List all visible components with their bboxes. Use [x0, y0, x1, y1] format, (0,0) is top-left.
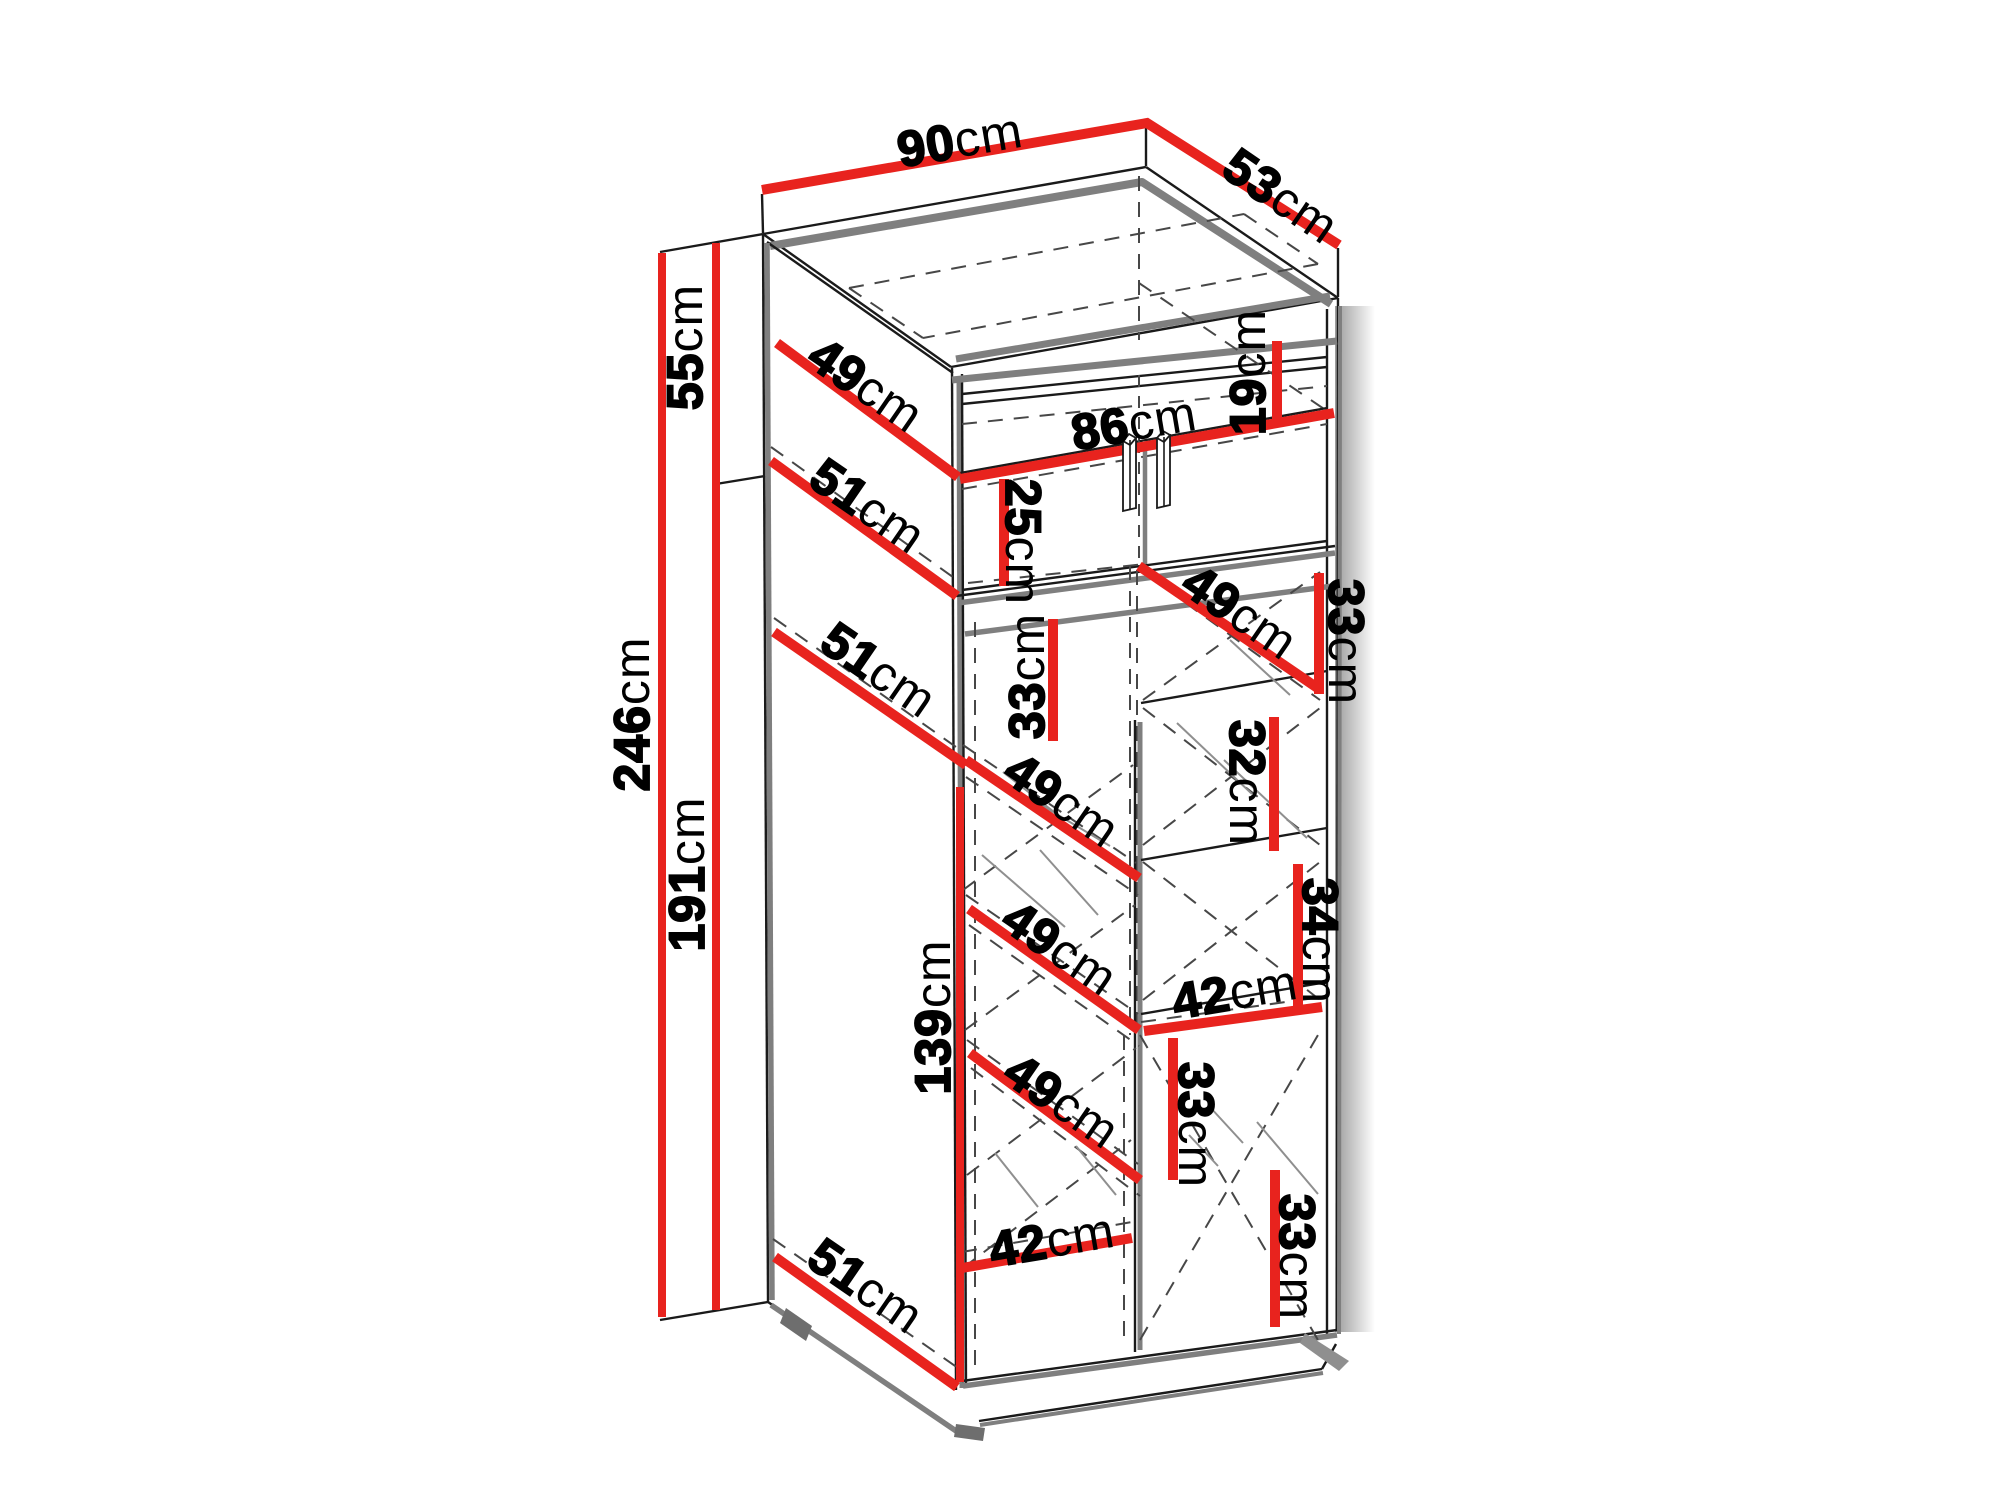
svg-text:55cm: 55cm — [657, 284, 713, 410]
svg-text:246cm: 246cm — [604, 636, 660, 791]
svg-text:19cm: 19cm — [1220, 309, 1276, 435]
svg-text:139cm: 139cm — [905, 939, 961, 1094]
svg-text:34cm: 34cm — [1292, 878, 1348, 1004]
svg-text:33cm: 33cm — [1269, 1194, 1325, 1320]
svg-text:33cm: 33cm — [999, 613, 1055, 739]
svg-text:33cm: 33cm — [1318, 579, 1374, 705]
svg-text:25cm: 25cm — [995, 479, 1051, 605]
svg-text:191cm: 191cm — [659, 796, 715, 951]
svg-text:33cm: 33cm — [1168, 1062, 1224, 1188]
svg-text:32cm: 32cm — [1219, 720, 1275, 846]
